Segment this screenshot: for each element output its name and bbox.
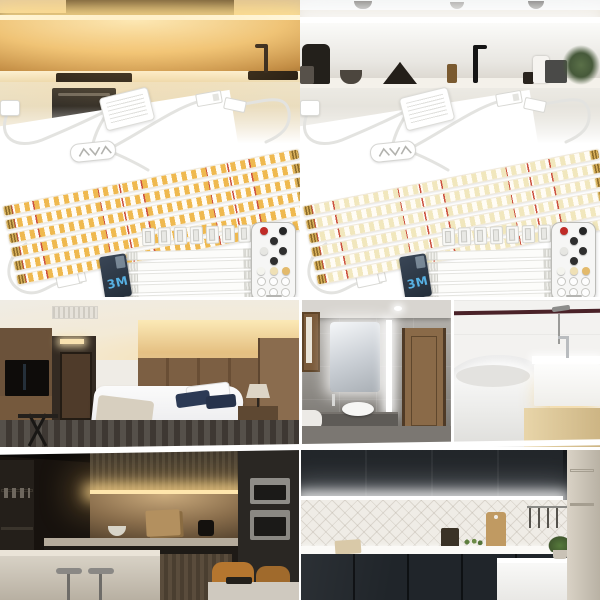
backlit-mirror	[330, 322, 380, 392]
remote-key-row	[253, 227, 294, 235]
jumper-cable	[128, 259, 254, 271]
remote-key	[281, 288, 290, 297]
gray-bathroom-photo	[302, 300, 451, 447]
adhesive-brand-label: 3M	[406, 274, 430, 292]
countertop	[44, 538, 240, 546]
remote-key	[257, 288, 266, 297]
inline-controller	[69, 140, 117, 164]
remote-key	[282, 267, 290, 275]
remote-key-row	[553, 277, 594, 286]
mounting-clip	[158, 227, 172, 245]
vessel-sink	[342, 402, 374, 416]
rack-bar	[18, 414, 58, 418]
remote-key-row	[253, 237, 294, 245]
navy-pillow	[205, 394, 236, 410]
wood-door	[402, 328, 446, 434]
jumper-cable-stack	[127, 248, 254, 297]
mounting-clip	[190, 226, 204, 244]
vertical-light-bar	[386, 320, 392, 412]
remote-keypad	[553, 227, 594, 296]
side-wall-shelf	[567, 450, 600, 600]
remote-key-row	[253, 257, 294, 265]
jumper-cable	[128, 270, 254, 282]
plant-pot	[553, 550, 567, 559]
adapter-cable	[93, 118, 104, 143]
power-plug	[0, 100, 20, 116]
remote-key	[570, 237, 578, 245]
remote-caption	[566, 295, 582, 297]
ac-vent	[52, 306, 98, 319]
ceiling	[302, 300, 451, 318]
luggage-rack	[14, 414, 62, 446]
bedroom-photo	[0, 300, 299, 447]
remote-key-row	[253, 267, 294, 275]
shower-hose	[558, 314, 560, 344]
downlight	[394, 306, 402, 311]
kit-contents: 3M	[300, 0, 600, 297]
remote-keypad	[253, 227, 294, 296]
strip-connector	[195, 90, 223, 107]
mounting-clip	[238, 224, 252, 242]
faucet	[332, 394, 335, 406]
remote-key	[279, 247, 287, 255]
remote-key	[557, 277, 566, 286]
black-kitchen-photo	[301, 450, 600, 600]
dark-kitchen-photo	[0, 450, 299, 600]
window	[302, 312, 320, 372]
remote-key	[581, 288, 590, 297]
hanging-utensils	[529, 508, 565, 528]
brand-zigzag-logo-icon	[370, 141, 416, 163]
strip-connector	[523, 97, 547, 113]
adapter-label	[106, 94, 148, 125]
jumper-cable	[428, 281, 554, 293]
door	[60, 352, 92, 420]
remote-key	[260, 247, 268, 255]
bar-stool	[88, 568, 114, 600]
lamp	[246, 384, 270, 398]
remote-key-row	[253, 247, 294, 255]
cutting-boards	[145, 509, 180, 537]
white-bathroom-photo	[454, 300, 600, 447]
mounting-clip	[222, 225, 236, 243]
jumper-cable	[428, 259, 554, 271]
lamp-stem	[257, 398, 259, 407]
remote-key	[582, 267, 590, 275]
power-plug	[300, 100, 320, 116]
bar-stool	[56, 568, 82, 600]
adapter-label	[406, 94, 448, 125]
adhesive-brand-label: 3M	[106, 274, 130, 292]
tv-screen	[5, 360, 49, 396]
kettle	[198, 520, 214, 536]
remote-key	[269, 277, 278, 286]
remote-key	[270, 257, 278, 265]
remote-key	[557, 267, 565, 275]
mounting-clip	[142, 228, 156, 246]
arch-cable	[244, 100, 289, 142]
kit-panel-warm: 3M	[0, 0, 300, 297]
remote-key-row	[553, 267, 594, 275]
jumper-cable	[428, 270, 554, 282]
remote-key	[260, 227, 268, 235]
remote-key	[281, 277, 290, 286]
adapter-cable	[393, 118, 404, 143]
mounting-clip	[458, 227, 472, 245]
remote-control	[251, 222, 296, 297]
remote-key	[560, 247, 568, 255]
mounting-clip	[490, 226, 504, 244]
remote-key-row	[253, 277, 294, 286]
mounting-clip	[206, 225, 220, 243]
remote-key	[560, 227, 568, 235]
kit-contents: 3M	[0, 0, 300, 297]
remote-key-row	[553, 257, 594, 265]
remote-control	[551, 222, 596, 297]
faucet	[566, 336, 569, 358]
jumper-cable	[127, 248, 253, 260]
floating-vanity	[534, 364, 600, 406]
remote-key-row	[553, 227, 594, 235]
mounting-clip	[506, 225, 520, 243]
product-collage: 3M	[0, 0, 600, 600]
remote-key	[579, 227, 587, 235]
power-cable	[304, 112, 404, 144]
remote-caption	[266, 295, 282, 297]
remote-key	[570, 257, 578, 265]
upper-cabinets	[90, 450, 240, 490]
corridor-light	[60, 339, 84, 344]
cutting-board	[486, 512, 506, 546]
remote-key	[569, 277, 578, 286]
remote-key	[270, 267, 278, 275]
remote-key	[581, 277, 590, 286]
power-cable	[4, 112, 104, 144]
controller-cable	[414, 153, 448, 170]
arch-cable	[544, 100, 589, 142]
remote-key	[557, 288, 566, 297]
remote-key	[257, 277, 266, 286]
wall-oven	[250, 510, 290, 540]
remote-key	[270, 237, 278, 245]
brand-zigzag-logo-icon	[70, 141, 116, 163]
remote-key	[579, 247, 587, 255]
remote-key	[570, 267, 578, 275]
inline-controller	[369, 140, 417, 164]
kit-panel-cool: 3M	[300, 0, 600, 297]
remote-key-row	[553, 247, 594, 255]
mounting-clip	[538, 224, 552, 242]
strip-connector	[223, 97, 247, 113]
mounting-clip	[474, 227, 488, 245]
remote-key	[257, 267, 265, 275]
power-adapter	[399, 86, 456, 131]
remote-key	[279, 227, 287, 235]
jumper-cable	[128, 281, 254, 293]
vegetables	[461, 538, 485, 546]
towel	[335, 539, 362, 555]
dining-table	[208, 582, 299, 600]
wall-oven	[250, 478, 290, 504]
power-adapter	[99, 86, 156, 131]
jumper-cable-stack	[427, 248, 554, 297]
mounting-clip	[522, 225, 536, 243]
remote-key-row	[553, 237, 594, 245]
mounting-clip	[442, 228, 456, 246]
controller-cable	[114, 153, 148, 170]
jumper-cable	[427, 248, 553, 260]
bottles	[441, 528, 459, 546]
shelf-bottles	[4, 488, 30, 498]
strip-connector	[495, 90, 523, 107]
mounting-clip	[174, 227, 188, 245]
black-upper-cabinets	[301, 450, 563, 496]
